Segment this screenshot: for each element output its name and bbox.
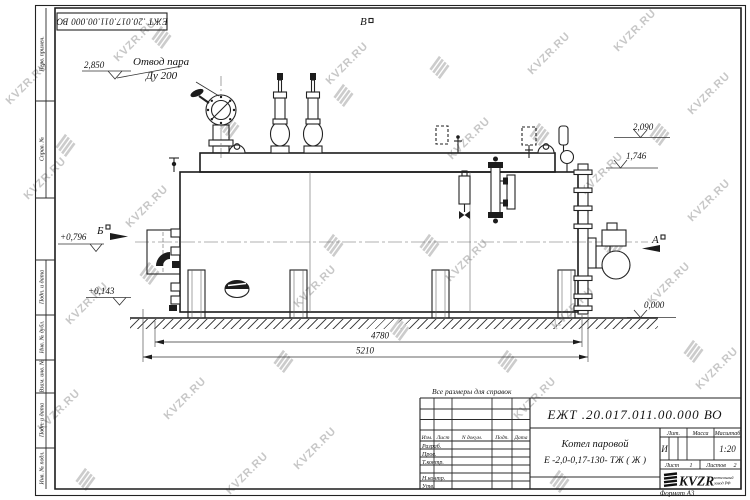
kvzr-logo-sub2: завод РФ bbox=[713, 481, 731, 486]
lit-value: И bbox=[660, 444, 668, 454]
lifting-lug bbox=[229, 144, 245, 153]
kvzr-watermark-text: KVZR.RU bbox=[162, 375, 209, 422]
kvzr-watermark-text: KVZR.RU bbox=[224, 450, 271, 497]
kvzr-logo-watermark bbox=[273, 351, 295, 373]
steam-outlet-valve bbox=[189, 87, 236, 153]
row-nkontr: Н.контр. bbox=[421, 476, 445, 482]
lit-label: Лит. bbox=[666, 431, 680, 437]
view-b-arrow bbox=[110, 233, 128, 240]
kvzr-watermark-text: KVZR.RU bbox=[22, 155, 69, 202]
sheets-label: Листов bbox=[705, 463, 726, 469]
steam-outlet-dn: Ду 200 bbox=[145, 70, 178, 82]
dim-5210-label: 5210 bbox=[356, 346, 375, 356]
doc-code-mirrored: ЕЖТ .20.017.011.00.000 ВО bbox=[56, 17, 169, 27]
length-dimensions: 4780 5210 bbox=[143, 309, 588, 362]
product-model: Е -2,0-0,17-130- ТЖ ( Ж ) bbox=[543, 455, 646, 466]
format-note: Формат А3 bbox=[660, 490, 695, 498]
row-prov: Пров. bbox=[421, 452, 436, 458]
kvzr-watermark-text: KVZR.RU bbox=[526, 30, 573, 77]
water-level-gauge bbox=[488, 157, 515, 224]
kvzr-logo-watermark bbox=[419, 235, 441, 257]
manhole bbox=[225, 281, 249, 298]
kvzr-watermark-text: KVZR.RU bbox=[444, 237, 491, 284]
kvzr-logo-watermark bbox=[333, 85, 355, 107]
kvzr-logo-watermark bbox=[389, 319, 411, 341]
col-podp: Подп. bbox=[494, 434, 509, 441]
col-list: Лист bbox=[436, 435, 450, 441]
scale-label: Масштаб bbox=[714, 430, 742, 437]
kvzr-logo-watermark bbox=[683, 341, 705, 363]
doc-code: ЕЖТ .20.017.011.00.000 ВО bbox=[546, 407, 722, 422]
stamp-podp-data-2: Подп. и дата bbox=[39, 403, 46, 438]
sheet-value: 1 bbox=[690, 463, 693, 469]
stamp-vzam-inv: Взам. инв. № bbox=[40, 359, 46, 392]
kvzr-watermark-text: KVZR.RU bbox=[612, 7, 659, 54]
kvzr-logo-watermark bbox=[55, 135, 77, 157]
elevation-1746-label: 1,746 bbox=[626, 151, 647, 161]
kvzr-watermark-text: KVZR.RU bbox=[446, 115, 493, 162]
elevation-0796-label: +0,796 bbox=[60, 232, 87, 242]
row-razrab: Разраб. bbox=[421, 443, 441, 450]
safety-valve bbox=[304, 73, 323, 153]
row-tkontr: Т.контр. bbox=[422, 460, 444, 466]
elevation-2090-label: 2,090 bbox=[633, 122, 654, 132]
kvzr-logo-watermark bbox=[497, 351, 519, 373]
front-nozzles bbox=[169, 229, 180, 311]
boiler-drawing bbox=[130, 73, 658, 318]
watermark-layer: KVZR.RU KVZR.RU KVZR.RU KVZR.RU KVZR.RU … bbox=[4, 7, 741, 497]
kvzr-watermark-text: KVZR.RU bbox=[686, 70, 733, 117]
kvzr-logo-watermark bbox=[529, 124, 551, 146]
scale-value: 1:20 bbox=[719, 444, 736, 454]
view-v-label: В bbox=[360, 16, 367, 28]
kvzr-logo-sub1: котельный bbox=[714, 475, 734, 480]
stamp-sprav-no: Справ. № bbox=[40, 137, 46, 162]
elevation-0000-label: 0,000 bbox=[644, 300, 665, 310]
kvzr-watermark-text: KVZR.RU bbox=[324, 40, 371, 87]
drawing-canvas: KVZR.RU KVZR.RU KVZR.RU KVZR.RU KVZR.RU … bbox=[0, 0, 750, 500]
sheet-label: Лист bbox=[664, 463, 680, 469]
kvzr-logo-text: KVZR bbox=[678, 474, 714, 489]
elevation-0143-label: +0,143 bbox=[88, 286, 115, 296]
safety-valve bbox=[271, 73, 290, 153]
kvzr-logo-watermark bbox=[323, 235, 345, 257]
kvzr-logo: KVZR котельный завод РФ bbox=[664, 474, 734, 489]
kvzr-watermark-text: KVZR.RU bbox=[124, 183, 171, 230]
support-skid bbox=[188, 270, 205, 318]
stamp-inv-podl: Инв. № подл. bbox=[39, 451, 46, 485]
kvzr-watermark-text: KVZR.RU bbox=[686, 177, 733, 224]
row-utv: Утв. bbox=[422, 484, 434, 490]
view-b-label: Б bbox=[96, 225, 104, 237]
elevation-2850-label: 2,850 bbox=[84, 60, 105, 70]
view-a-label: А bbox=[651, 234, 659, 246]
stamp-podp-data-1: Подп. и дата bbox=[39, 270, 46, 305]
kvzr-logo-watermark bbox=[429, 57, 451, 79]
kvzr-logo-watermark bbox=[75, 469, 97, 491]
title-block: Все размеры для справок ЕЖТ .20.017.011.… bbox=[420, 387, 741, 498]
view-a-arrow bbox=[642, 245, 660, 252]
level-gauge-cylinder bbox=[459, 171, 470, 219]
steam-outlet-callout: Отвод пара bbox=[133, 56, 190, 68]
stamp-perv-primen: Перв. примен. bbox=[40, 36, 46, 73]
sheet-frame: Перв. примен. Справ. № Подп. и дата Инв.… bbox=[35, 6, 746, 496]
col-ndokum: N докум. bbox=[461, 434, 482, 441]
col-data: Дата bbox=[513, 435, 527, 441]
product-name: Котел паровой bbox=[561, 439, 630, 450]
reference-note: Все размеры для справок bbox=[432, 387, 512, 396]
drawing-sheet: KVZR.RU KVZR.RU KVZR.RU KVZR.RU KVZR.RU … bbox=[0, 0, 750, 500]
stamp-inv-dubl: Инв. № дубл. bbox=[39, 321, 46, 355]
air-vent-valve bbox=[169, 158, 179, 172]
col-izm: Изм. bbox=[421, 435, 433, 441]
kvzr-watermark-text: KVZR.RU bbox=[292, 425, 339, 472]
mass-label: Масса bbox=[691, 431, 708, 437]
dim-4780-label: 4780 bbox=[371, 331, 390, 341]
sheets-value: 2 bbox=[734, 463, 737, 469]
